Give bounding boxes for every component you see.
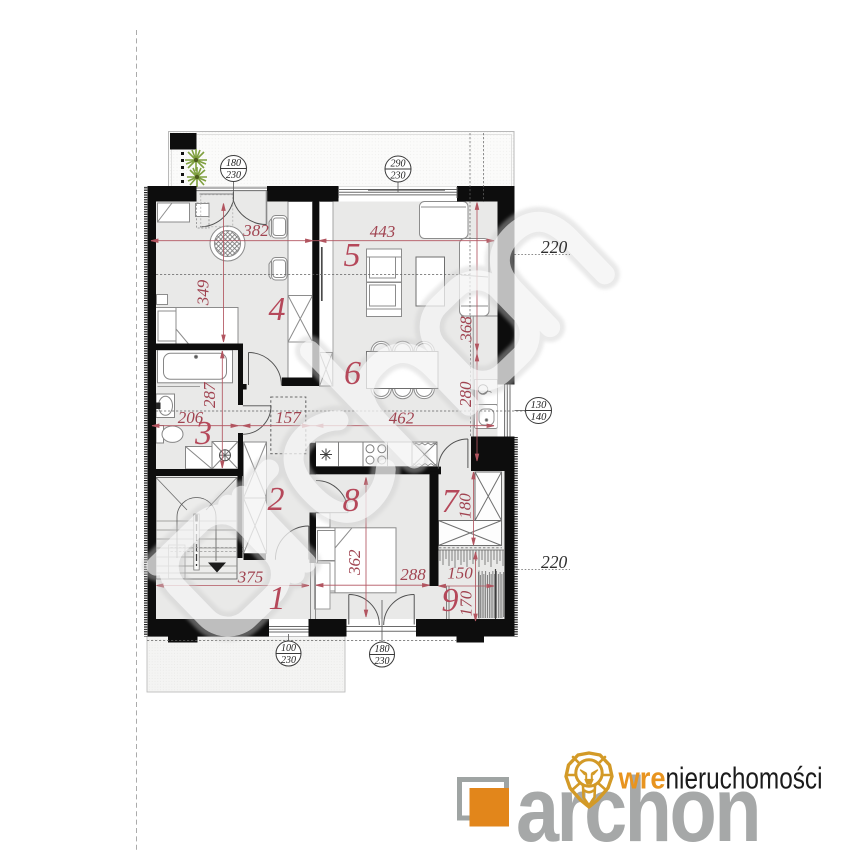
svg-text:6: 6 bbox=[344, 355, 361, 392]
svg-text:362: 362 bbox=[345, 549, 364, 576]
svg-text:230: 230 bbox=[375, 656, 390, 667]
svg-text:290: 290 bbox=[391, 159, 406, 170]
svg-text:368: 368 bbox=[457, 316, 476, 343]
svg-text:180: 180 bbox=[375, 644, 390, 655]
svg-text:462: 462 bbox=[389, 409, 415, 428]
svg-text:230: 230 bbox=[391, 171, 406, 182]
svg-text:280: 280 bbox=[456, 381, 475, 407]
svg-text:2: 2 bbox=[268, 481, 285, 518]
svg-text:150: 150 bbox=[447, 564, 473, 583]
svg-text:382: 382 bbox=[242, 221, 269, 240]
svg-text:7: 7 bbox=[442, 483, 461, 520]
svg-text:287: 287 bbox=[200, 381, 219, 408]
svg-text:157: 157 bbox=[275, 408, 302, 427]
svg-text:230: 230 bbox=[226, 170, 241, 181]
svg-text:349: 349 bbox=[194, 279, 213, 306]
svg-text:443: 443 bbox=[370, 222, 396, 241]
svg-text:5: 5 bbox=[344, 237, 361, 274]
svg-text:375: 375 bbox=[237, 568, 264, 587]
svg-text:1: 1 bbox=[269, 580, 286, 617]
svg-text:170: 170 bbox=[457, 590, 476, 616]
svg-text:wre: wre bbox=[618, 761, 666, 796]
svg-text:220: 220 bbox=[541, 552, 568, 572]
svg-text:3: 3 bbox=[194, 415, 212, 452]
svg-text:nieruchomości: nieruchomości bbox=[666, 761, 823, 796]
svg-text:4: 4 bbox=[269, 291, 286, 328]
svg-text:220: 220 bbox=[541, 237, 568, 257]
svg-text:9: 9 bbox=[442, 582, 459, 619]
svg-text:130: 130 bbox=[531, 400, 548, 411]
svg-text:140: 140 bbox=[531, 412, 548, 423]
svg-text:180: 180 bbox=[226, 158, 241, 169]
svg-text:288: 288 bbox=[400, 565, 426, 584]
svg-text:8: 8 bbox=[343, 482, 360, 519]
svg-text:100: 100 bbox=[281, 643, 296, 654]
svg-text:230: 230 bbox=[281, 655, 296, 666]
